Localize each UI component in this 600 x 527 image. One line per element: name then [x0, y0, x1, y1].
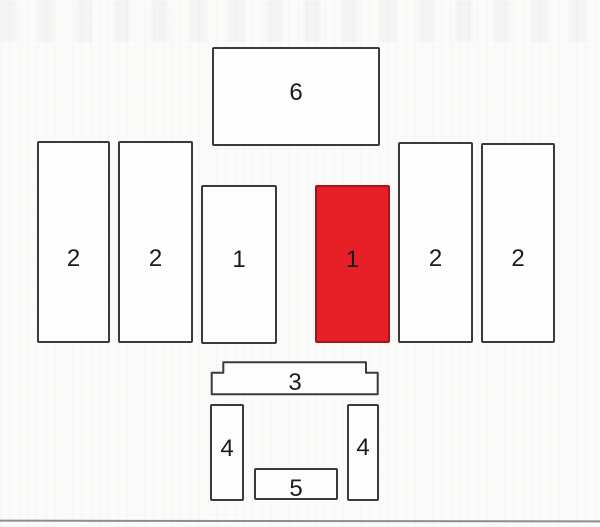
block-6[interactable]: 6 [212, 47, 380, 146]
block-2-left-label: 2 [120, 247, 191, 271]
block-2-far-right-label: 2 [483, 247, 553, 271]
block-3[interactable]: 3 [210, 361, 380, 396]
block-4-left-label: 4 [212, 437, 242, 461]
block-5[interactable]: 5 [254, 468, 338, 500]
block-1-left-label: 1 [203, 248, 275, 272]
block-4-left[interactable]: 4 [210, 404, 244, 501]
block-2-left[interactable]: 2 [118, 141, 193, 343]
block-4-right-label: 4 [349, 436, 377, 460]
block-1-left[interactable]: 1 [201, 185, 277, 344]
block-2-far-left[interactable]: 2 [37, 141, 110, 343]
block-5-label: 5 [256, 477, 336, 501]
block-2-right-label: 2 [400, 247, 471, 271]
scan-smudge [0, 0, 600, 42]
block-6-label: 6 [214, 81, 378, 105]
block-1-selected[interactable]: 1 [315, 185, 390, 343]
block-2-far-right[interactable]: 2 [481, 143, 555, 343]
block-3-label: 3 [210, 371, 380, 395]
block-2-right[interactable]: 2 [398, 142, 473, 343]
block-2-far-left-label: 2 [39, 247, 108, 271]
scan-edge-line [0, 520, 600, 523]
block-1-selected-label: 1 [317, 248, 388, 272]
hall-plan-canvas: 6 2 2 1 1 2 2 3 4 4 5 [0, 0, 600, 527]
block-4-right[interactable]: 4 [347, 404, 379, 501]
